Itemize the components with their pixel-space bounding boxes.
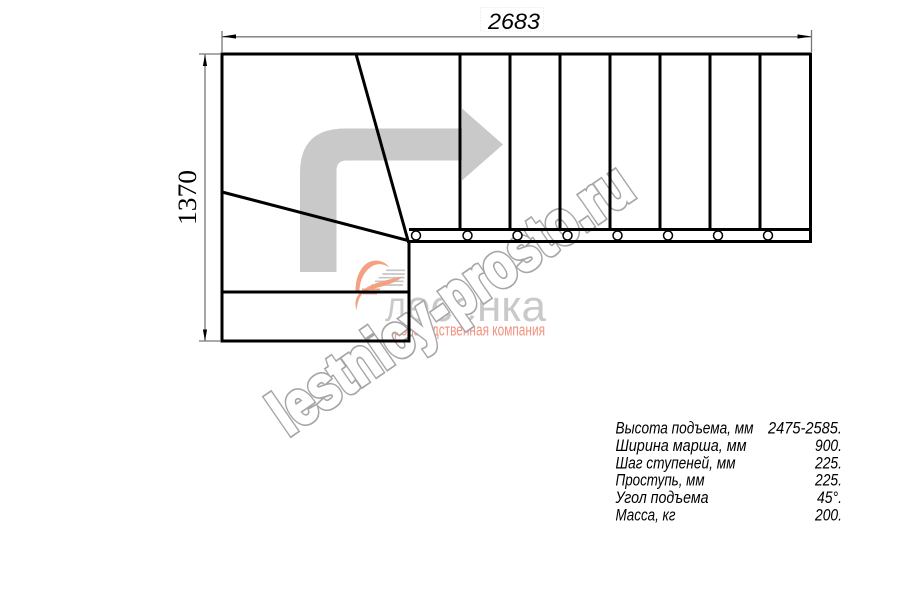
- svg-text:45°.: 45°.: [817, 488, 842, 507]
- svg-text:900.: 900.: [815, 436, 842, 455]
- svg-text:1370: 1370: [172, 170, 202, 225]
- svg-text:Высота подъема, мм: Высота подъема, мм: [616, 419, 754, 438]
- svg-text:Угол подъема: Угол подъема: [615, 488, 709, 507]
- svg-text:225.: 225.: [814, 471, 842, 490]
- svg-text:2683: 2683: [487, 9, 541, 34]
- svg-text:225.: 225.: [814, 453, 842, 472]
- svg-text:Ширина марша, мм: Ширина марша, мм: [616, 436, 747, 455]
- svg-text:2475-2585.: 2475-2585.: [767, 419, 842, 438]
- svg-text:Масса, кг: Масса, кг: [616, 505, 676, 524]
- svg-text:Шаг ступеней, мм: Шаг ступеней, мм: [616, 453, 736, 472]
- svg-text:Проступь, мм: Проступь, мм: [616, 471, 705, 490]
- svg-text:200.: 200.: [814, 505, 842, 524]
